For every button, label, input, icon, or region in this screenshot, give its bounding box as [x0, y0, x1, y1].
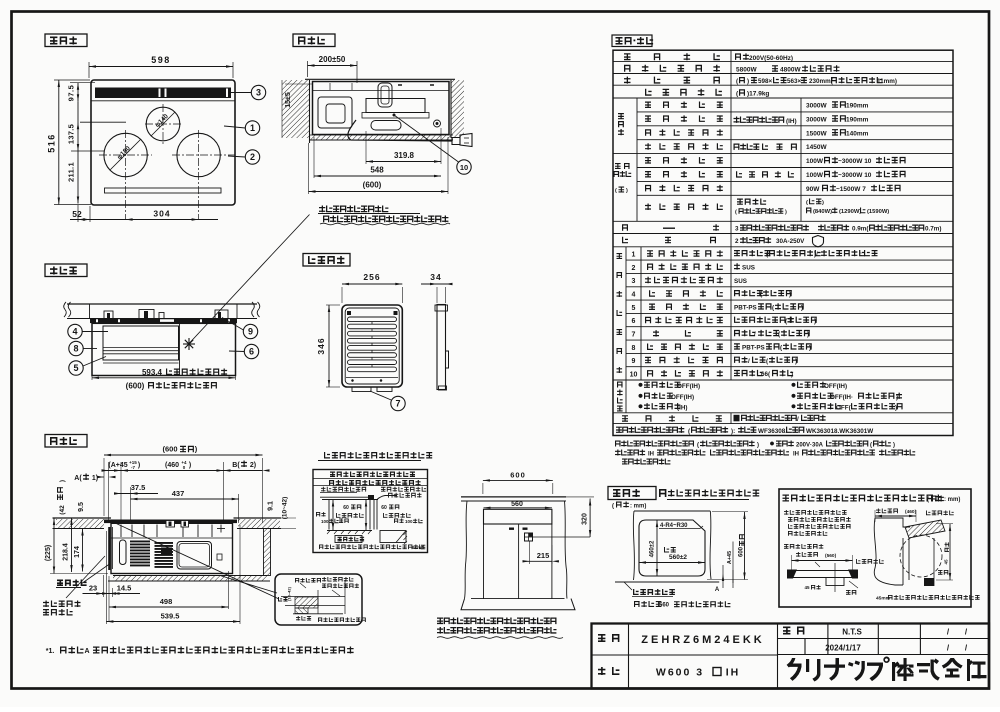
svg-text:2024/1/17: 2024/1/17 [825, 644, 861, 653]
svg-text:304: 304 [153, 209, 170, 219]
svg-text:3: 3 [735, 226, 739, 233]
svg-text:200±50: 200±50 [319, 55, 346, 64]
svg-text:211.1: 211.1 [67, 162, 76, 182]
svg-text:(460): (460) [905, 509, 917, 515]
svg-text:4: 4 [72, 327, 77, 337]
svg-text:(600): (600) [126, 382, 145, 391]
svg-text:200V·30A: 200V·30A [796, 442, 824, 448]
svg-text:437: 437 [172, 489, 185, 498]
svg-text:7: 7 [632, 331, 636, 338]
svg-text:(600: (600 [162, 445, 177, 454]
svg-text:IH: IH [793, 451, 799, 457]
svg-text:B(: B( [232, 462, 240, 469]
svg-text:23: 23 [89, 584, 97, 593]
svg-text:100W: 100W [806, 172, 824, 179]
svg-text:100: 100 [405, 519, 413, 524]
svg-text:IH: IH [726, 667, 741, 679]
svg-text:A(: A( [74, 475, 82, 482]
svg-text:): ) [795, 358, 797, 365]
svg-text:): ) [747, 78, 749, 85]
svg-text:3: 3 [256, 88, 261, 98]
svg-text:ZEHRZ6M24EKK: ZEHRZ6M24EKK [641, 634, 764, 646]
svg-text:45: 45 [804, 585, 810, 590]
svg-text:200V(50-60Hz): 200V(50-60Hz) [749, 55, 793, 62]
svg-text:4800W: 4800W [780, 66, 801, 73]
svg-text:(1290W): (1290W) [839, 209, 861, 215]
svg-text:598: 598 [151, 55, 171, 65]
svg-text:OFF(: OFF( [836, 404, 852, 411]
svg-text:5800W: 5800W [736, 66, 757, 73]
svg-text:97.5: 97.5 [67, 85, 76, 102]
svg-text:W600 3: W600 3 [656, 667, 704, 679]
svg-text:8: 8 [73, 344, 78, 354]
svg-text:(460: (460 [165, 462, 179, 469]
svg-text:WK363018.WK36301W: WK363018.WK36301W [806, 428, 873, 435]
svg-text:(: ( [612, 504, 614, 510]
svg-text:45: 45 [944, 559, 949, 565]
svg-text:190mm: 190mm [846, 116, 869, 123]
svg-text:N.T.S: N.T.S [842, 628, 862, 637]
svg-text:14.5: 14.5 [117, 584, 132, 593]
svg-text:1500W: 1500W [806, 130, 827, 137]
svg-text:11mm): 11mm) [877, 78, 897, 85]
svg-text:10: 10 [460, 163, 468, 172]
svg-text:): ) [189, 462, 191, 469]
svg-text:(A+45: (A+45 [108, 462, 127, 469]
svg-text:9: 9 [248, 327, 253, 337]
svg-text:(840W): (840W) [813, 209, 832, 215]
svg-text:52: 52 [72, 209, 82, 219]
svg-text:): ) [138, 462, 140, 469]
svg-text:)/: )/ [814, 251, 818, 258]
svg-text:90W: 90W [806, 186, 820, 193]
svg-text:9.1: 9.1 [268, 501, 275, 511]
svg-text:(: ( [735, 210, 737, 216]
svg-text:/: / [797, 416, 799, 423]
svg-text:(IH): (IH) [786, 118, 797, 125]
svg-text:): ) [814, 318, 816, 325]
svg-text:593.4: 593.4 [142, 368, 163, 377]
svg-text:2): 2) [250, 462, 256, 469]
svg-text:/: / [748, 358, 750, 365]
svg-text:)17.9kg: )17.9kg [747, 91, 769, 98]
svg-text:7: 7 [395, 399, 400, 409]
svg-text:60: 60 [343, 505, 349, 511]
svg-text:): ) [59, 480, 66, 482]
svg-text:1: 1 [250, 123, 255, 133]
svg-text:516: 516 [47, 133, 57, 153]
svg-text:(560): (560) [825, 553, 837, 559]
svg-text:(IH): (IH) [677, 404, 688, 411]
svg-text:): ) [791, 371, 793, 378]
svg-text:(: ( [870, 442, 872, 448]
svg-text:OFF(IH): OFF(IH) [677, 383, 700, 390]
svg-text:): ) [822, 200, 824, 206]
svg-text:(: ( [697, 442, 699, 448]
svg-text:-7: -7 [131, 465, 135, 470]
svg-text:):: ): [731, 428, 735, 435]
svg-text:): ) [807, 331, 809, 338]
svg-text:OFF(IH·: OFF(IH· [830, 394, 853, 401]
svg-text:PBT-PS: PBT-PS [734, 305, 757, 312]
svg-text:600: 600 [739, 546, 745, 557]
svg-text:OFF(IH): OFF(IH) [671, 394, 694, 401]
svg-text:): ) [801, 305, 803, 312]
svg-text:(1590W): (1590W) [867, 209, 889, 215]
svg-text:): ) [626, 188, 628, 194]
svg-text:A+45: A+45 [727, 551, 733, 564]
svg-text:0.7m): 0.7m) [925, 226, 941, 233]
svg-text:(: ( [615, 188, 617, 194]
svg-text:1: 1 [632, 252, 636, 259]
svg-text:(10~42): (10~42) [282, 497, 289, 520]
svg-text:2: 2 [735, 238, 739, 245]
svg-text:8: 8 [632, 345, 636, 352]
svg-text:PBT-PS: PBT-PS [742, 345, 765, 352]
svg-text:(225): (225) [45, 545, 52, 561]
svg-text:~3000W 10: ~3000W 10 [838, 172, 872, 179]
svg-text:(600): (600) [363, 181, 382, 190]
svg-text:34: 34 [430, 272, 441, 282]
svg-text:(10~42): (10~42) [287, 586, 292, 601]
svg-text:30A-250V: 30A-250V [776, 238, 805, 245]
svg-text:5: 5 [73, 363, 78, 373]
svg-text:548: 548 [370, 166, 384, 175]
svg-text:SUS: SUS [742, 265, 755, 272]
svg-text:66(: 66( [761, 371, 771, 378]
svg-text:4: 4 [632, 292, 636, 299]
svg-text:230mm(: 230mm( [809, 78, 834, 85]
svg-text:): ) [789, 291, 791, 298]
svg-text:2: 2 [632, 265, 636, 272]
svg-text:2: 2 [250, 152, 255, 162]
svg-text:3000W: 3000W [806, 116, 827, 123]
svg-text:346: 346 [316, 337, 326, 354]
svg-text:560: 560 [511, 501, 523, 508]
svg-text:): ) [757, 442, 759, 448]
svg-text:): ) [896, 394, 898, 401]
svg-text:100W: 100W [806, 158, 824, 165]
svg-text:319.8: 319.8 [394, 151, 415, 160]
svg-text:(: ( [806, 200, 808, 206]
svg-text:WF36308.: WF36308. [758, 428, 787, 435]
svg-text:100: 100 [321, 519, 329, 524]
svg-text:498: 498 [160, 597, 173, 606]
svg-text:256: 256 [363, 272, 380, 282]
svg-text:174: 174 [74, 546, 81, 558]
svg-text:A: A [84, 648, 89, 655]
svg-text:37.5: 37.5 [131, 483, 146, 492]
svg-text:: mm): : mm) [944, 497, 960, 503]
svg-text:3: 3 [632, 278, 636, 285]
svg-text:60: 60 [381, 505, 387, 511]
svg-text:SUS: SUS [734, 278, 747, 285]
svg-text:3000W: 3000W [806, 103, 827, 110]
svg-text:560: 560 [659, 603, 670, 609]
svg-text:600: 600 [510, 471, 526, 480]
svg-text:45mm: 45mm [876, 596, 890, 602]
svg-text:320: 320 [582, 513, 589, 525]
svg-text:): ) [895, 404, 897, 411]
svg-text:OFF(IH): OFF(IH) [824, 383, 847, 390]
svg-text:6: 6 [249, 347, 254, 357]
svg-text:140mm: 140mm [846, 130, 869, 137]
svg-text:218.4: 218.4 [63, 543, 70, 561]
svg-text:6: 6 [632, 318, 636, 325]
svg-text:): ) [785, 210, 787, 216]
svg-text:A: A [715, 587, 720, 593]
svg-text:(42: (42 [59, 505, 66, 515]
svg-text:): ) [893, 442, 895, 448]
svg-text:/: / [754, 331, 756, 338]
svg-text:460±2: 460±2 [650, 540, 656, 557]
svg-text:1450W: 1450W [806, 144, 827, 151]
svg-text:539.5: 539.5 [161, 612, 180, 621]
svg-text:137.5: 137.5 [67, 124, 76, 144]
svg-text:*1.: *1. [46, 648, 55, 655]
svg-text:0.9m(: 0.9m( [852, 226, 869, 233]
svg-text:~3000W 10: ~3000W 10 [838, 158, 872, 165]
svg-text::: : [860, 251, 862, 258]
svg-text:560±2: 560±2 [669, 554, 687, 561]
svg-text:10: 10 [630, 371, 638, 378]
svg-text:5: 5 [632, 305, 636, 312]
svg-text:: mm): : mm) [630, 504, 646, 510]
svg-text:563×: 563× [787, 78, 802, 85]
svg-text:IH: IH [648, 451, 654, 457]
svg-text:15±5: 15±5 [285, 92, 292, 108]
svg-text:(: ( [927, 497, 929, 503]
svg-text:~1500W 7: ~1500W 7 [836, 186, 866, 193]
svg-text:190mm: 190mm [846, 103, 869, 110]
svg-text:9: 9 [632, 358, 636, 365]
svg-text:598×: 598× [758, 78, 773, 85]
svg-text:9.5: 9.5 [78, 502, 85, 512]
svg-text:215: 215 [537, 551, 550, 560]
svg-text:): ) [809, 345, 811, 352]
svg-text:6cm: 6cm [412, 545, 421, 550]
